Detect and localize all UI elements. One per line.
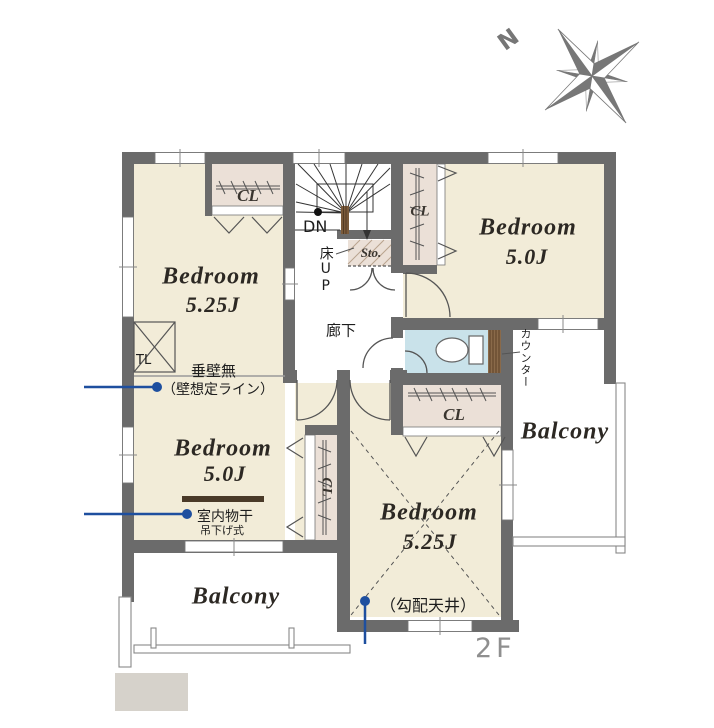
no-hanging-wall-note: 垂壁無: [191, 360, 236, 381]
hanging-type-label: 吊下げ式: [200, 522, 244, 538]
storage-label: Sto.: [361, 245, 382, 261]
bedroom-s-size: 5.25J: [403, 529, 458, 555]
closet-label-s: CL: [318, 477, 335, 496]
dn-marker-dot: [314, 208, 322, 216]
closet-label-ne: CL: [410, 204, 429, 221]
bedroom-s-label: Bedroom: [380, 500, 478, 527]
floorplan-2f: Bedroom 5.25J Bedroom 5.0J Bedroom 5.0J …: [0, 0, 714, 728]
bedroom-w-size: 5.0J: [204, 461, 247, 487]
drying-rod-bar: [182, 496, 264, 502]
lower-roof-block: [115, 673, 188, 711]
closet-label-mid: CL: [443, 405, 465, 425]
floor-up-label: 床UP: [318, 246, 333, 295]
hallway-label: 廊下: [326, 320, 356, 341]
bedroom-nw-label: Bedroom: [162, 264, 260, 291]
closet-label-nw: CL: [237, 186, 259, 206]
assumed-wall-line-note: （壁想定ライン）: [162, 379, 274, 399]
bedroom-ne-label: Bedroom: [479, 215, 577, 242]
bedroom-ne-size: 5.0J: [506, 244, 549, 270]
top-light-label: TL: [136, 353, 151, 368]
floor-label-2f: 2F: [475, 633, 516, 664]
counter-top: [488, 325, 501, 373]
sloped-ceiling-note: （勾配天井）: [380, 592, 476, 616]
balcony-east-label: Balcony: [521, 419, 609, 446]
compass-rose: [511, 0, 673, 157]
bedroom-w-label: Bedroom: [174, 436, 272, 463]
floorplan-drawing: [0, 0, 714, 728]
stair-handrail-post: [341, 206, 349, 234]
counter-label: カウンター: [520, 328, 531, 388]
balcony-sw-label: Balcony: [192, 584, 280, 611]
bedroom-nw-size: 5.25J: [186, 292, 241, 318]
toilet-fixture: [436, 336, 483, 364]
stairs-down-label: DN: [303, 217, 327, 236]
